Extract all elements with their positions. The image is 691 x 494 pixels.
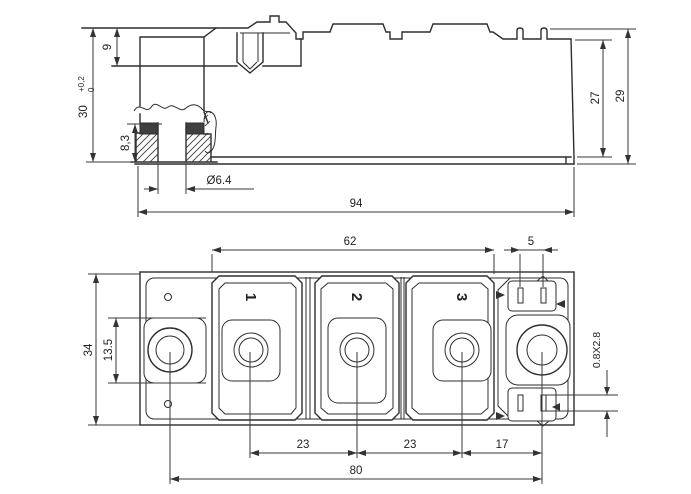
- break-line: [134, 104, 211, 113]
- dim-80-label: 80: [350, 465, 363, 477]
- dim-29-label: 29: [615, 90, 627, 103]
- polarity-arrow: [556, 300, 565, 308]
- dim-terminal-span: 62: [212, 236, 494, 274]
- dim-13-5-label: 13.5: [103, 339, 115, 361]
- drawing-canvas: 9 30 +0,2 0 8,3: [0, 0, 691, 494]
- left-mount-area: [144, 294, 206, 408]
- terminal-label-3: 3: [453, 293, 470, 301]
- dim-62-label: 62: [344, 236, 357, 248]
- dim-terminal-height: 9: [102, 28, 120, 66]
- technical-drawing: 9 30 +0,2 0 8,3: [0, 0, 691, 494]
- dim-mount-pitch: 80: [170, 465, 542, 482]
- dim-hole-diameter: Ø6.4: [144, 164, 254, 194]
- dim-30-label: 30: [78, 105, 90, 118]
- dim-body-height: 27: [575, 40, 612, 157]
- seal-cap-right: [186, 123, 204, 134]
- bushing-section: [131, 111, 217, 162]
- terminal-label-2: 2: [348, 293, 365, 301]
- dim-23a-label: 23: [297, 439, 310, 451]
- seal-cap-left: [140, 123, 158, 134]
- tab-block-bottom: [496, 388, 560, 426]
- dim-30-tol-plus: +0,2: [77, 76, 86, 92]
- terminal-lug: [204, 28, 216, 37]
- dim-length: 94: [138, 166, 574, 217]
- dim-5-label: 5: [528, 236, 534, 248]
- terminal-label-1: 1: [242, 293, 259, 301]
- side-view: 9 30 +0,2 0 8,3: [77, 16, 636, 217]
- dim-tab-pitch: 5: [504, 236, 558, 287]
- terminal-section-1: 1: [212, 276, 302, 420]
- dim-27-label: 27: [590, 92, 602, 105]
- dim-34-label: 34: [83, 343, 95, 356]
- dim-terminal-pitch-chain: 23 23 17: [250, 439, 542, 456]
- terminal-screw: [237, 33, 263, 73]
- right-end-cap: [496, 276, 570, 426]
- dim-30-tol-zero: 0: [87, 87, 96, 92]
- hatch-left: [136, 133, 158, 162]
- dim-8-3-label: 8,3: [120, 135, 132, 151]
- dim-17-label: 17: [496, 439, 509, 451]
- terminal-blade: [134, 37, 211, 123]
- dim-23b-label: 23: [404, 439, 417, 451]
- pilot-hole-top: [165, 294, 172, 301]
- left-mount-pad: [144, 318, 206, 383]
- dim-9-label: 9: [102, 44, 114, 50]
- dim-94-label: 94: [350, 198, 363, 210]
- polarity-arrow: [496, 291, 505, 299]
- dim-dia-label: Ø6.4: [207, 175, 233, 187]
- dim-tab-label: 0.8X2.8: [591, 332, 603, 368]
- plan-view: 1 2 3: [83, 236, 618, 484]
- terminal-section-3: 3: [406, 276, 494, 420]
